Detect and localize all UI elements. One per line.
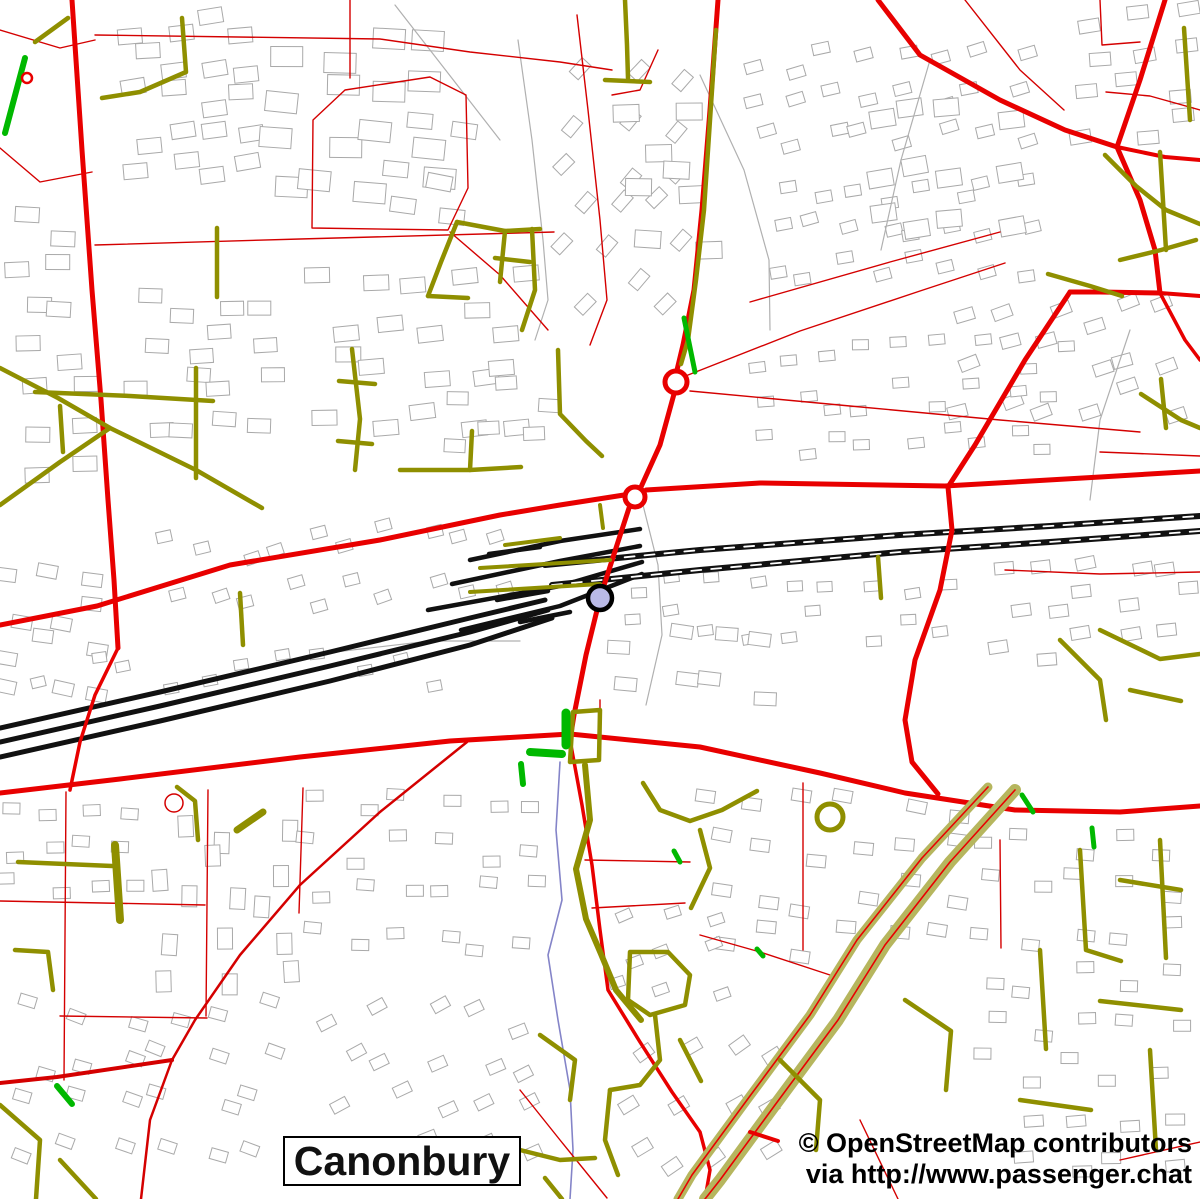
stream xyxy=(548,762,573,1199)
place-label-canonbury: Canonbury xyxy=(283,1136,521,1186)
roundabout-icon xyxy=(165,794,183,812)
roundabout-icon xyxy=(665,371,687,393)
attribution-line-1: © OpenStreetMap contributors xyxy=(799,1128,1192,1159)
roundabout-icon xyxy=(817,804,843,830)
map-attribution: © OpenStreetMap contributors via http://… xyxy=(799,1128,1192,1190)
attribution-line-2: via http://www.passenger.chat xyxy=(799,1159,1192,1190)
station-marker-icon[interactable] xyxy=(588,586,612,610)
roundabout-icon xyxy=(625,487,645,507)
roundabout-icon xyxy=(22,73,32,83)
map-render xyxy=(0,0,1200,1199)
gray-streets xyxy=(335,5,1130,705)
map-canvas[interactable]: Canonbury © OpenStreetMap contributors v… xyxy=(0,0,1200,1199)
